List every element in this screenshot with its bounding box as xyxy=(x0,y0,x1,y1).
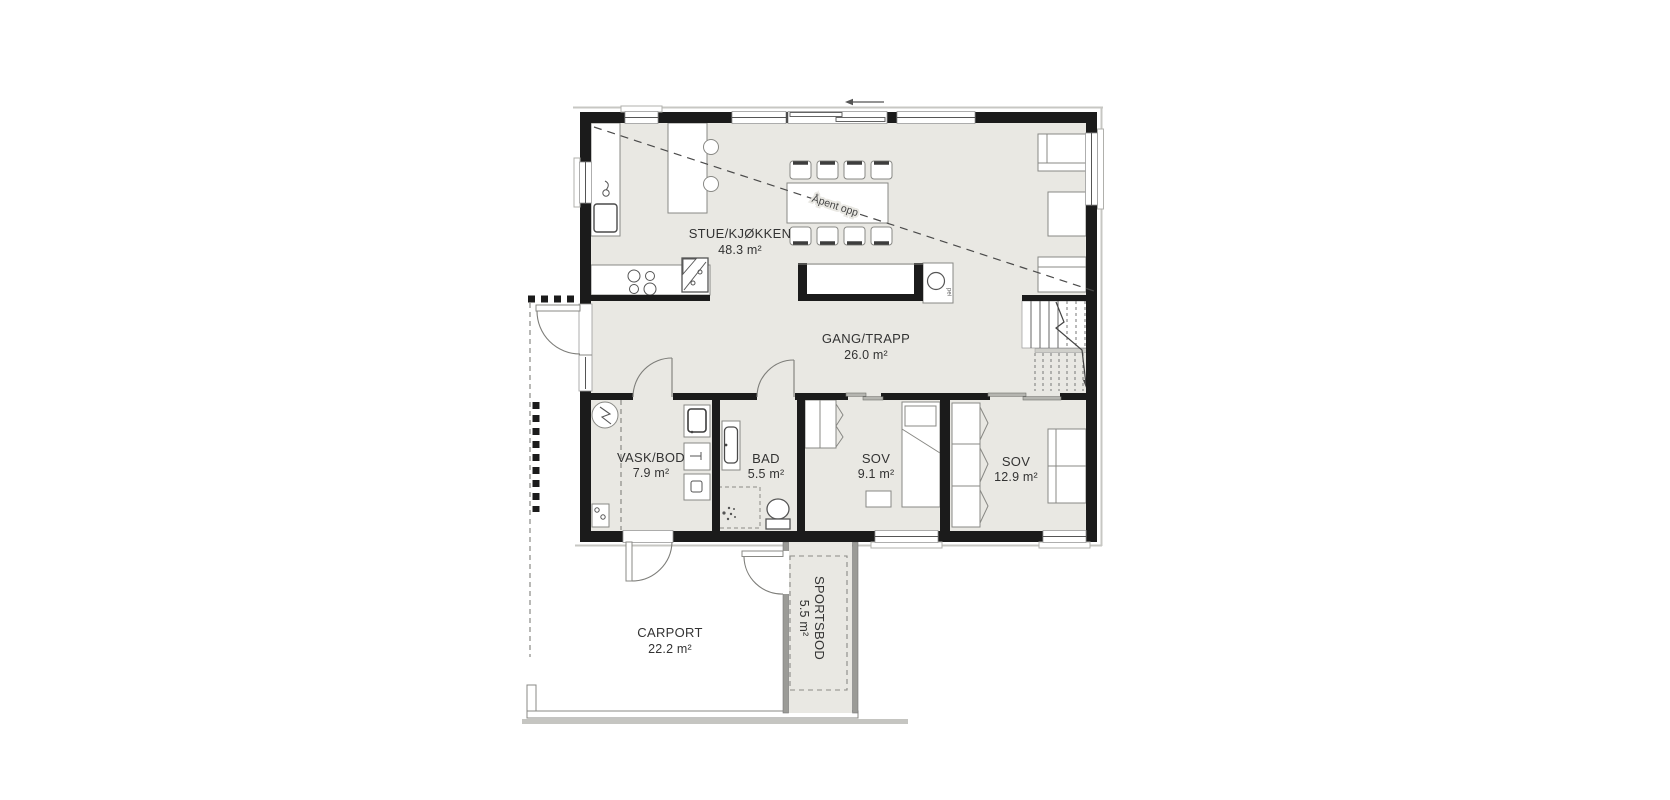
wall-sov-sov xyxy=(940,400,950,531)
island-wall-bottom xyxy=(798,294,923,301)
wall-vask-bad xyxy=(712,400,720,531)
floor-plan-drawing: pei xyxy=(0,0,1670,800)
floor-drain-unit xyxy=(592,504,609,527)
area-vask-bod: 7.9 m² xyxy=(633,466,670,480)
island-counter xyxy=(807,265,914,294)
label-sov-small: SOV xyxy=(862,451,890,466)
window-dining-top xyxy=(732,112,786,124)
sportsbod-wall-right xyxy=(853,542,859,713)
kitchen-bar xyxy=(668,123,707,213)
stair-half-wall xyxy=(1022,295,1093,301)
sliding-door-sov-small xyxy=(846,393,883,401)
label-stue-kjokken: STUE/KJØKKEN xyxy=(689,226,792,241)
fireplace: pei xyxy=(923,263,953,303)
area-sov-small: 9.1 m² xyxy=(858,467,895,481)
area-stue-kjokken: 48.3 m² xyxy=(718,243,762,257)
bar-stool xyxy=(704,177,719,192)
entrance-door xyxy=(536,304,592,391)
sliding-terrace-door xyxy=(788,99,887,124)
water-heater xyxy=(592,402,618,428)
carport-post xyxy=(527,685,536,711)
sportsbod-door-opening xyxy=(783,551,790,594)
toilet-bowl xyxy=(767,499,789,519)
slide-direction-arrow xyxy=(845,99,853,105)
kitchen-counter-left xyxy=(591,123,620,236)
single-bed xyxy=(902,402,940,507)
sportsbod-door-arc xyxy=(744,557,783,594)
sliding-door-sov-large xyxy=(988,393,1061,401)
area-bad: 5.5 m² xyxy=(748,467,785,481)
bar-stool xyxy=(704,140,719,155)
kitchen-sink-unit xyxy=(682,258,708,292)
window-sov-large xyxy=(1039,531,1090,549)
window-kitchen-top xyxy=(621,106,662,124)
stair-rail xyxy=(1035,349,1093,353)
label-vask-bod: VASK/BOD xyxy=(617,450,685,465)
area-sov-large: 12.9 m² xyxy=(994,470,1038,484)
tv-bench xyxy=(1038,134,1086,171)
sofa xyxy=(1038,257,1086,292)
door-carport xyxy=(623,531,673,582)
carport-ground-shadow xyxy=(522,719,908,724)
coffee-table xyxy=(1048,192,1086,236)
wardrobe-bank xyxy=(952,403,980,527)
window-kitchen-left xyxy=(574,158,592,207)
area-carport: 22.2 m² xyxy=(648,642,692,656)
label-sportsbod: SPORTSBOD xyxy=(812,576,827,660)
floor-plan-page: pei xyxy=(0,0,1670,800)
dresser xyxy=(866,491,891,507)
label-gang-trapp: GANG/TRAPP xyxy=(822,331,910,346)
area-gang-trapp: 26.0 m² xyxy=(844,348,888,362)
label-sov-large: SOV xyxy=(1002,454,1030,469)
window-living-right xyxy=(1086,129,1104,209)
window-sov-small xyxy=(871,531,942,549)
sportsbod-door-leaf xyxy=(742,551,783,557)
wall-kitchen-half xyxy=(591,295,710,301)
label-bad: BAD xyxy=(752,451,780,466)
label-carport: CARPORT xyxy=(637,625,702,640)
wall-bad-sov xyxy=(797,400,805,531)
area-sportsbod: 5.5 m² xyxy=(797,600,811,637)
dryer xyxy=(684,474,710,500)
window-living-top xyxy=(897,112,975,124)
fireplace-label: pei xyxy=(946,288,952,296)
toilet-tank xyxy=(766,519,790,529)
